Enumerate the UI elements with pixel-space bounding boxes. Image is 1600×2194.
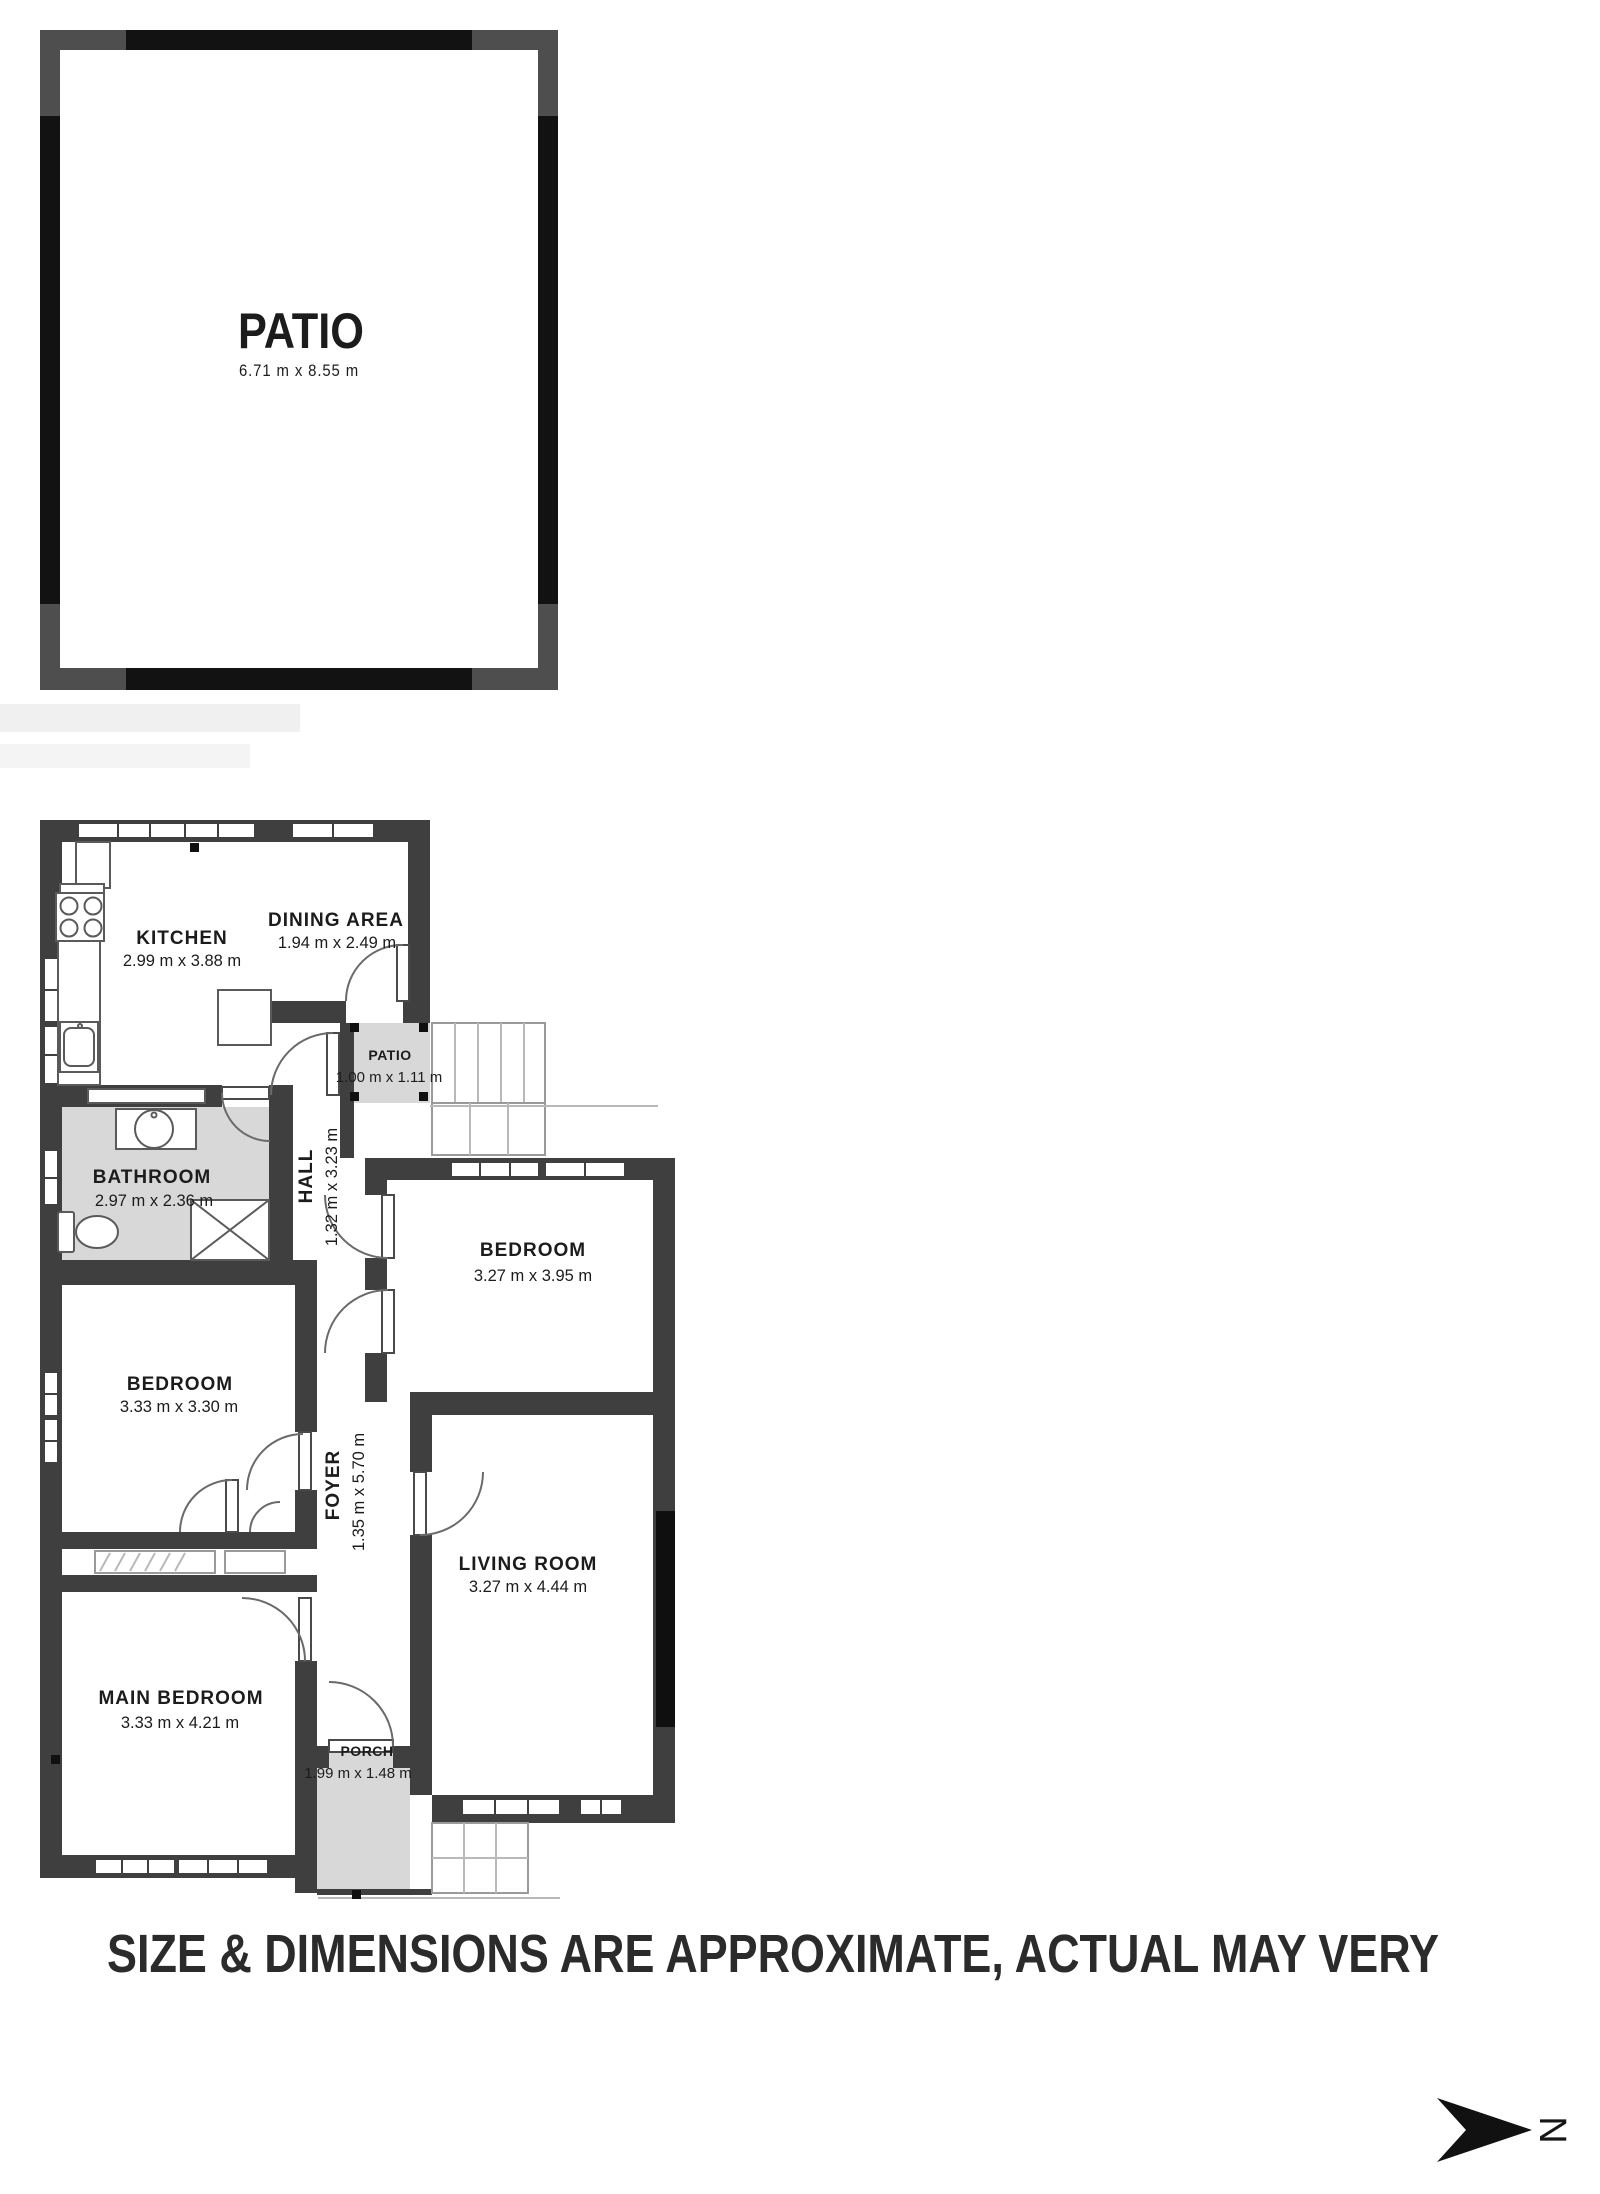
bedroom-right-label: BEDROOM: [480, 1240, 586, 1261]
main-bedroom-dims: 3.33 m x 4.21 m: [121, 1714, 239, 1732]
bedroom-left-label: BEDROOM: [127, 1374, 233, 1395]
kitchen-cabinet-row: [88, 1089, 205, 1103]
floor-plan-drawing: PATIO 6.71 m x 8.55 m: [0, 0, 1600, 2194]
door-main-bedroom: [242, 1598, 311, 1661]
porch-label: PORCH: [340, 1743, 393, 1759]
closet-shelf-2: [225, 1551, 285, 1573]
kitchen-counter-strip: [60, 884, 104, 893]
stairs-upper: [430, 1023, 658, 1155]
top-patio: PATIO 6.71 m x 8.55 m: [40, 30, 558, 690]
floor-plan-page: PATIO 6.71 m x 8.55 m: [0, 0, 1600, 2194]
house-plan: KITCHEN 2.99 m x 3.88 m DINING AREA 1.94…: [40, 820, 675, 1899]
small-patio-label: PATIO: [368, 1047, 411, 1063]
foyer-label: FOYER: [323, 1450, 344, 1520]
north-label: N: [1531, 2116, 1573, 2143]
patio-corner-blocks: [40, 30, 558, 690]
kitchen-fixtures: [56, 842, 271, 1103]
north-arrow: N: [1437, 2098, 1573, 2162]
foyer-dims: 1.35 m x 5.70 m: [350, 1433, 368, 1551]
patio-wall-left: [40, 30, 60, 690]
door-foyer-living: [414, 1472, 483, 1535]
patio-wall-right: [538, 30, 558, 690]
living-room-label: LIVING ROOM: [459, 1554, 598, 1575]
bedroom-left-dims: 3.33 m x 3.30 m: [120, 1398, 238, 1416]
porch-dims: 1.99 m x 1.48 m: [304, 1765, 412, 1782]
walls: [40, 820, 675, 1895]
bathroom-label: BATHROOM: [93, 1167, 211, 1188]
small-patio-floor: [354, 1023, 430, 1103]
dining-dims: 1.94 m x 2.49 m: [278, 934, 396, 952]
bedroom-right-dims: 3.27 m x 3.95 m: [474, 1267, 592, 1285]
north-arrow-icon: [1437, 2098, 1532, 2162]
door-closet: [180, 1480, 280, 1532]
top-patio-dims: 6.71 m x 8.55 m: [239, 361, 359, 380]
kitchen-label: KITCHEN: [136, 928, 227, 949]
toilet-tank: [58, 1212, 74, 1252]
main-bedroom-label: MAIN BEDROOM: [98, 1688, 263, 1709]
dining-label: DINING AREA: [268, 910, 404, 931]
scan-artifacts: [0, 704, 300, 768]
door-front-entry: [329, 1682, 393, 1752]
closet: [95, 1551, 285, 1573]
living-room-sliding-door: [656, 1511, 675, 1727]
kitchen-dims: 2.99 m x 3.88 m: [123, 952, 241, 970]
kitchen-counter-top: [76, 842, 110, 888]
small-patio-dims: 1.00 m x 1.11 m: [336, 1069, 442, 1086]
toilet-bowl: [76, 1216, 118, 1248]
kitchen-island: [218, 990, 271, 1045]
door-dining-patio: [346, 945, 409, 1001]
hall-label: HALL: [296, 1149, 317, 1204]
bathroom-dims: 2.97 m x 2.36 m: [95, 1192, 213, 1210]
hall-dims: 1.32 m x 3.23 m: [323, 1128, 341, 1246]
top-patio-label: PATIO: [238, 303, 364, 359]
living-room-dims: 3.27 m x 4.44 m: [469, 1578, 587, 1596]
door-hall-lower: [325, 1290, 394, 1353]
door-bedroom-left: [247, 1432, 311, 1490]
disclaimer-text: SIZE & DIMENSIONS ARE APPROXIMATE, ACTUA…: [107, 1924, 1439, 1984]
